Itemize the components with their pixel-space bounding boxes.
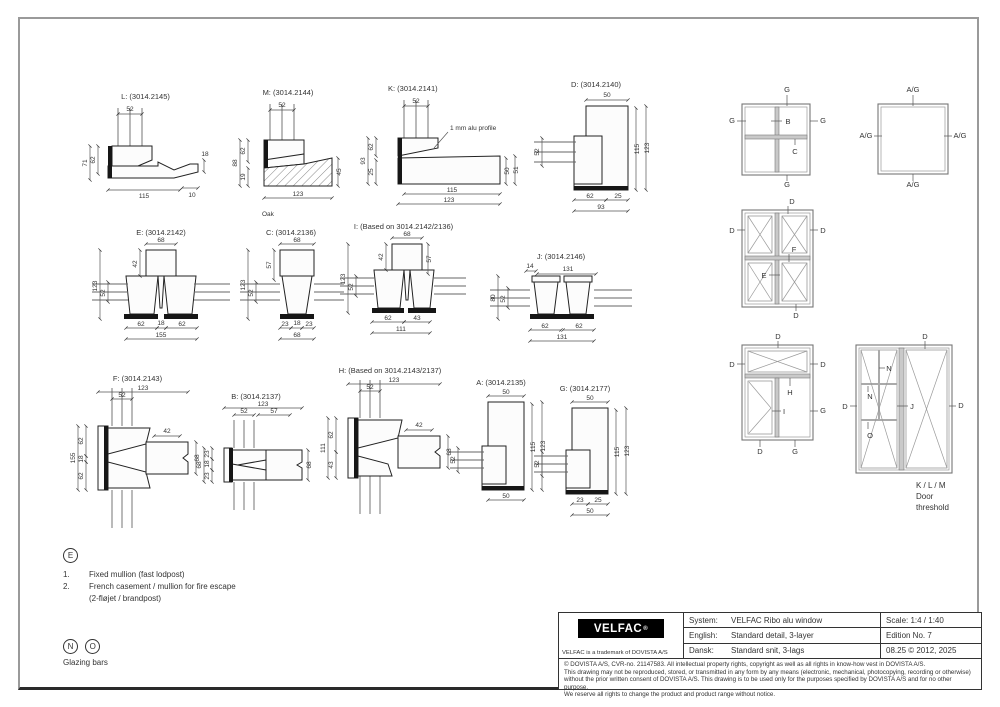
- svg-text:K / L / M: K / L / M: [916, 481, 946, 490]
- svg-text:115: 115: [447, 187, 458, 194]
- svg-text:51: 51: [513, 166, 520, 174]
- system-info: System:VELFAC Ribo alu window English:St…: [684, 613, 881, 658]
- elevation-four-casement: D D D F E D: [726, 192, 830, 322]
- note-number: 2.: [63, 581, 89, 593]
- svg-text:25: 25: [368, 168, 375, 176]
- svg-text:G: G: [820, 406, 826, 415]
- section-B: B: (3014.2137) 123 52 57 68 23 18 23 68: [196, 392, 316, 514]
- svg-text:50: 50: [586, 395, 594, 402]
- svg-text:42: 42: [378, 253, 385, 261]
- note-mullion: E 1.Fixed mullion (fast lodpost) 2.Frenc…: [63, 548, 236, 605]
- svg-text:42: 42: [163, 428, 171, 435]
- svg-text:80: 80: [490, 294, 497, 302]
- badge-E: E: [63, 548, 78, 563]
- row-value: VELFAC Ribo alu window: [731, 616, 822, 625]
- svg-text:25: 25: [614, 193, 622, 200]
- svg-text:45: 45: [336, 168, 343, 176]
- svg-text:131: 131: [563, 266, 574, 273]
- svg-text:123: 123: [258, 401, 269, 408]
- edition-info: Scale: 1:4 / 1:40 Edition No. 7 08.25 © …: [881, 613, 981, 658]
- elevation-single-frame: A/G A/G A/G A/G: [858, 82, 970, 194]
- section-H-drawing: 123 52 111 62 43 42 68: [320, 376, 460, 518]
- section-I: I: (Based on 3014.2142/2136) 68 42 57 12…: [336, 222, 471, 350]
- svg-text:E: E: [761, 271, 766, 280]
- svg-text:H: H: [787, 388, 792, 397]
- svg-text:115: 115: [634, 143, 641, 154]
- svg-text:J: J: [910, 402, 914, 411]
- profile-shape: [264, 140, 332, 186]
- profile-shape: [98, 426, 188, 490]
- svg-text:68: 68: [196, 461, 203, 469]
- svg-text:25: 25: [594, 497, 602, 504]
- section-G: G: (3014.2177) 50 52 115 123 23 25 50: [530, 384, 640, 532]
- badge-O: O: [85, 639, 100, 654]
- svg-text:62: 62: [328, 431, 335, 439]
- svg-text:155: 155: [70, 452, 77, 463]
- svg-text:23: 23: [576, 497, 584, 504]
- svg-text:68: 68: [157, 237, 165, 244]
- svg-text:52: 52: [500, 295, 507, 303]
- profile-shape: [280, 250, 314, 319]
- svg-text:52: 52: [450, 456, 457, 464]
- svg-text:G: G: [784, 85, 790, 94]
- section-title: G: (3014.2177): [530, 384, 640, 394]
- dimensions: 52 93 62 25 50 51 115 123: [360, 98, 520, 204]
- svg-text:93: 93: [360, 157, 367, 165]
- section-F-drawing: 123 52 155 62 18 62 42 68: [70, 384, 205, 532]
- svg-text:43: 43: [413, 315, 421, 322]
- svg-text:88: 88: [232, 159, 239, 167]
- door-threshold-caption: K / L / M Door threshold: [916, 481, 949, 512]
- section-D: D: (3014.2140) 50 52 115 123 62 25 93: [526, 80, 666, 220]
- svg-text:18: 18: [157, 320, 165, 327]
- svg-text:131: 131: [557, 334, 568, 341]
- svg-text:G: G: [820, 116, 826, 125]
- logo-cell: VELFAC® VELFAC is a trademark of DOVISTA…: [559, 613, 684, 658]
- svg-text:68: 68: [293, 237, 301, 244]
- glazing-bars-label: Glazing bars: [63, 657, 108, 669]
- svg-text:18: 18: [201, 151, 209, 158]
- svg-text:D: D: [729, 226, 735, 235]
- section-title: F: (3014.2143): [70, 374, 205, 384]
- svg-text:52: 52: [100, 289, 107, 297]
- note-glazing-bars: N O Glazing bars: [63, 639, 108, 669]
- svg-text:D: D: [958, 401, 964, 410]
- svg-text:155: 155: [156, 332, 167, 339]
- svg-text:1 mm alu profile: 1 mm alu profile: [450, 125, 497, 132]
- svg-text:62: 62: [137, 321, 145, 328]
- svg-text:52: 52: [534, 460, 541, 468]
- elevation-double-door: D D D N N O J K / L / M Door threshold: [838, 328, 1000, 513]
- date-text: 08.25 © 2012, 2025: [881, 644, 981, 658]
- row-label: Dansk:: [689, 646, 731, 655]
- section-J: J: (3014.2146) 14 131 80 52 62 62 131: [486, 252, 636, 352]
- svg-text:D: D: [729, 360, 735, 369]
- profile-shape: [124, 250, 198, 319]
- svg-text:123: 123: [644, 142, 651, 153]
- svg-text:50: 50: [502, 389, 510, 396]
- svg-text:23: 23: [204, 450, 211, 458]
- svg-text:D: D: [793, 311, 799, 320]
- svg-text:52: 52: [240, 408, 248, 415]
- svg-text:14: 14: [526, 263, 534, 270]
- section-B-drawing: 123 52 57 68 23 18 23 68: [196, 402, 316, 514]
- profile-shape: [398, 138, 500, 184]
- svg-text:D: D: [842, 402, 848, 411]
- section-H: H: (Based on 3014.2143/2137) 123 52 111 …: [320, 366, 460, 518]
- section-D-drawing: 50 52 115 123 62 25 93: [526, 90, 666, 220]
- svg-text:F: F: [792, 245, 797, 254]
- profile-shape: [348, 418, 440, 478]
- svg-text:50: 50: [603, 92, 611, 99]
- svg-text:10: 10: [188, 192, 196, 199]
- svg-text:O: O: [867, 431, 873, 440]
- svg-text:23: 23: [305, 321, 313, 328]
- svg-text:68: 68: [293, 332, 301, 339]
- svg-text:71: 71: [82, 159, 89, 167]
- section-E: E: (3014.2142) 68 42 123 52 62 18 62 155: [86, 228, 236, 346]
- svg-text:68: 68: [403, 231, 411, 238]
- profile-shape: [482, 402, 524, 490]
- row-value: Standard detail, 3-layer: [731, 631, 814, 640]
- title-block: VELFAC® VELFAC is a trademark of DOVISTA…: [558, 612, 982, 690]
- section-title: B: (3014.2137): [196, 392, 316, 402]
- note-text: French casement / mullion for fire escap…: [89, 581, 236, 593]
- row-label: English:: [689, 631, 731, 640]
- svg-text:52: 52: [248, 289, 255, 297]
- svg-text:19: 19: [240, 173, 247, 181]
- svg-text:123: 123: [240, 279, 247, 290]
- section-title: L: (3014.2145): [78, 92, 213, 102]
- section-C-drawing: 68 57 123 52 23 18 23 68: [236, 238, 346, 346]
- section-title: J: (3014.2146): [486, 252, 636, 262]
- profile-shape: [108, 146, 198, 178]
- svg-text:42: 42: [415, 422, 423, 429]
- profile-shape: [530, 276, 594, 319]
- section-E-drawing: 68 42 123 52 62 18 62 155: [86, 238, 236, 346]
- svg-text:115: 115: [614, 446, 621, 457]
- svg-text:C: C: [792, 147, 798, 156]
- svg-text:threshold: threshold: [916, 503, 949, 512]
- svg-text:D: D: [922, 332, 928, 341]
- section-I-drawing: 68 42 57 123 52 62 43 111: [336, 238, 471, 350]
- svg-text:50: 50: [504, 167, 511, 175]
- edition-text: Edition No. 7: [881, 628, 981, 643]
- section-J-drawing: 14 131 80 52 62 62 131: [486, 262, 636, 352]
- elevation-labels: A/G A/G A/G A/G: [860, 85, 967, 189]
- glazing-lines: [270, 104, 294, 140]
- svg-text:52: 52: [348, 283, 355, 291]
- svg-text:43: 43: [328, 461, 335, 469]
- svg-text:57: 57: [266, 261, 273, 269]
- svg-text:A/G: A/G: [954, 131, 967, 140]
- section-M: M: (3014.2144) 52 88 62 19 45 123 Oak: [228, 88, 348, 223]
- svg-text:62: 62: [541, 323, 549, 330]
- svg-text:52: 52: [278, 102, 286, 109]
- svg-text:123: 123: [138, 385, 149, 392]
- profile-shape: [574, 106, 628, 190]
- svg-text:42: 42: [132, 260, 139, 268]
- elevation-fixed-window: G G B G C G: [726, 82, 832, 194]
- copyright-text: © DOVISTA A/S, CVR-no. 21147583. All int…: [559, 659, 981, 701]
- section-K: K: (3014.2141) 1 mm alu profile 52 93 62…: [358, 84, 523, 219]
- section-F: F: (3014.2143) 123 52 155 62 18 62 42 68: [70, 374, 205, 532]
- svg-text:123: 123: [293, 191, 304, 198]
- svg-text:N: N: [867, 392, 872, 401]
- svg-text:G: G: [729, 116, 735, 125]
- svg-text:52: 52: [534, 148, 541, 156]
- svg-text:18: 18: [204, 460, 211, 468]
- svg-text:Door: Door: [916, 492, 934, 501]
- svg-text:23: 23: [281, 321, 289, 328]
- svg-text:A/G: A/G: [907, 180, 920, 189]
- svg-text:123: 123: [92, 280, 99, 291]
- section-C: C: (3014.2136) 68 57 123 52 23 18 23 68: [236, 228, 346, 346]
- section-title: H: (Based on 3014.2143/2137): [320, 366, 460, 376]
- svg-text:D: D: [820, 226, 826, 235]
- svg-text:52: 52: [412, 98, 420, 105]
- svg-text:62: 62: [586, 193, 594, 200]
- section-title: C: (3014.2136): [236, 228, 346, 238]
- svg-text:62: 62: [368, 143, 375, 151]
- svg-text:93: 93: [597, 204, 605, 211]
- elevation-transom-window: D D D H I G D G: [726, 328, 830, 460]
- svg-text:18: 18: [293, 320, 301, 327]
- svg-text:52: 52: [118, 392, 126, 399]
- glazing-lines: [112, 388, 132, 528]
- svg-text:D: D: [757, 447, 763, 456]
- svg-text:G: G: [792, 447, 798, 456]
- svg-text:I: I: [783, 407, 785, 416]
- svg-text:62: 62: [240, 147, 247, 155]
- row-value: Standard snit, 3-lags: [731, 646, 804, 655]
- svg-text:123: 123: [389, 377, 400, 384]
- svg-text:50: 50: [586, 508, 594, 515]
- note-number: 1.: [63, 569, 89, 581]
- section-title: K: (3014.2141): [358, 84, 523, 94]
- svg-text:D: D: [775, 332, 781, 341]
- section-L: L: (3014.2145) 52 71 62 18 115 10: [78, 92, 213, 212]
- svg-text:62: 62: [90, 156, 97, 164]
- velfac-logo: VELFAC®: [578, 619, 664, 638]
- svg-text:57: 57: [426, 255, 433, 263]
- svg-text:50: 50: [502, 493, 510, 500]
- note-text: Fixed mullion (fast lodpost): [89, 569, 185, 581]
- svg-text:115: 115: [139, 193, 150, 200]
- svg-text:N: N: [886, 364, 891, 373]
- svg-text:62: 62: [178, 321, 186, 328]
- svg-text:A/G: A/G: [860, 131, 873, 140]
- section-K-drawing: 1 mm alu profile 52 93 62 25 50 51 115 1…: [358, 94, 523, 219]
- oak-note: Oak: [262, 211, 275, 218]
- svg-text:123: 123: [340, 273, 347, 284]
- svg-text:62: 62: [384, 315, 392, 322]
- glazing-lines: [490, 290, 632, 306]
- svg-text:62: 62: [575, 323, 583, 330]
- svg-text:D: D: [789, 197, 795, 206]
- svg-text:G: G: [784, 180, 790, 189]
- svg-text:111: 111: [320, 443, 327, 453]
- section-G-drawing: 50 52 115 123 23 25 50: [530, 394, 640, 532]
- note-text: (2-fløjet / brandpost): [89, 593, 161, 605]
- section-title: M: (3014.2144): [228, 88, 348, 98]
- svg-text:123: 123: [444, 197, 455, 204]
- svg-text:52: 52: [126, 106, 134, 113]
- svg-text:57: 57: [270, 408, 278, 415]
- row-label: System:: [689, 616, 731, 625]
- profile-shape: [566, 408, 608, 494]
- alu-profile-note: 1 mm alu profile: [434, 125, 497, 148]
- svg-text:111: 111: [396, 326, 406, 333]
- svg-text:62: 62: [78, 437, 85, 445]
- section-M-drawing: 52 88 62 19 45 123 Oak: [228, 98, 348, 223]
- svg-text:B: B: [785, 117, 790, 126]
- svg-text:68: 68: [306, 461, 313, 469]
- badge-N: N: [63, 639, 78, 654]
- svg-text:23: 23: [204, 472, 211, 480]
- scale-text: Scale: 1:4 / 1:40: [881, 613, 981, 628]
- section-title: D: (3014.2140): [526, 80, 666, 90]
- svg-text:D: D: [820, 360, 826, 369]
- svg-text:62: 62: [78, 472, 85, 480]
- section-L-drawing: 52 71 62 18 115 10: [78, 102, 213, 212]
- svg-text:A/G: A/G: [907, 85, 920, 94]
- svg-text:18: 18: [78, 455, 85, 463]
- trademark-text: VELFAC is a trademark of DOVISTA A/S: [562, 650, 668, 656]
- svg-text:52: 52: [366, 384, 374, 391]
- svg-text:123: 123: [624, 445, 631, 456]
- profile-shape: [224, 448, 302, 482]
